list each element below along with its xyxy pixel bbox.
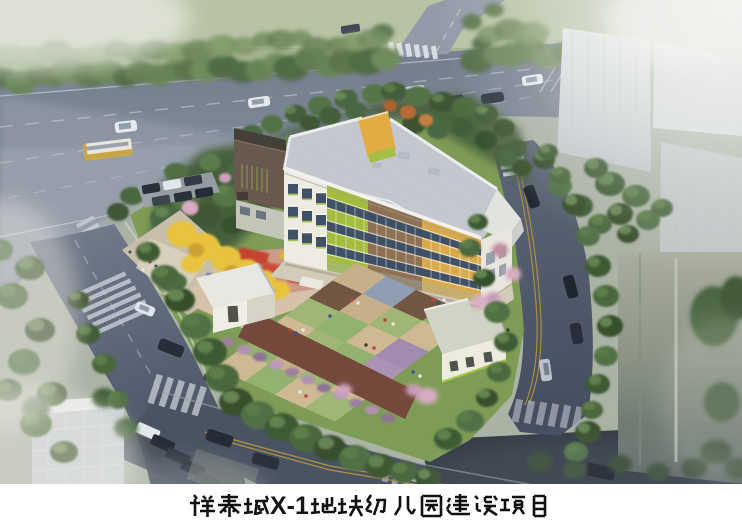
svg-text:X-1: X-1 <box>270 492 309 520</box>
